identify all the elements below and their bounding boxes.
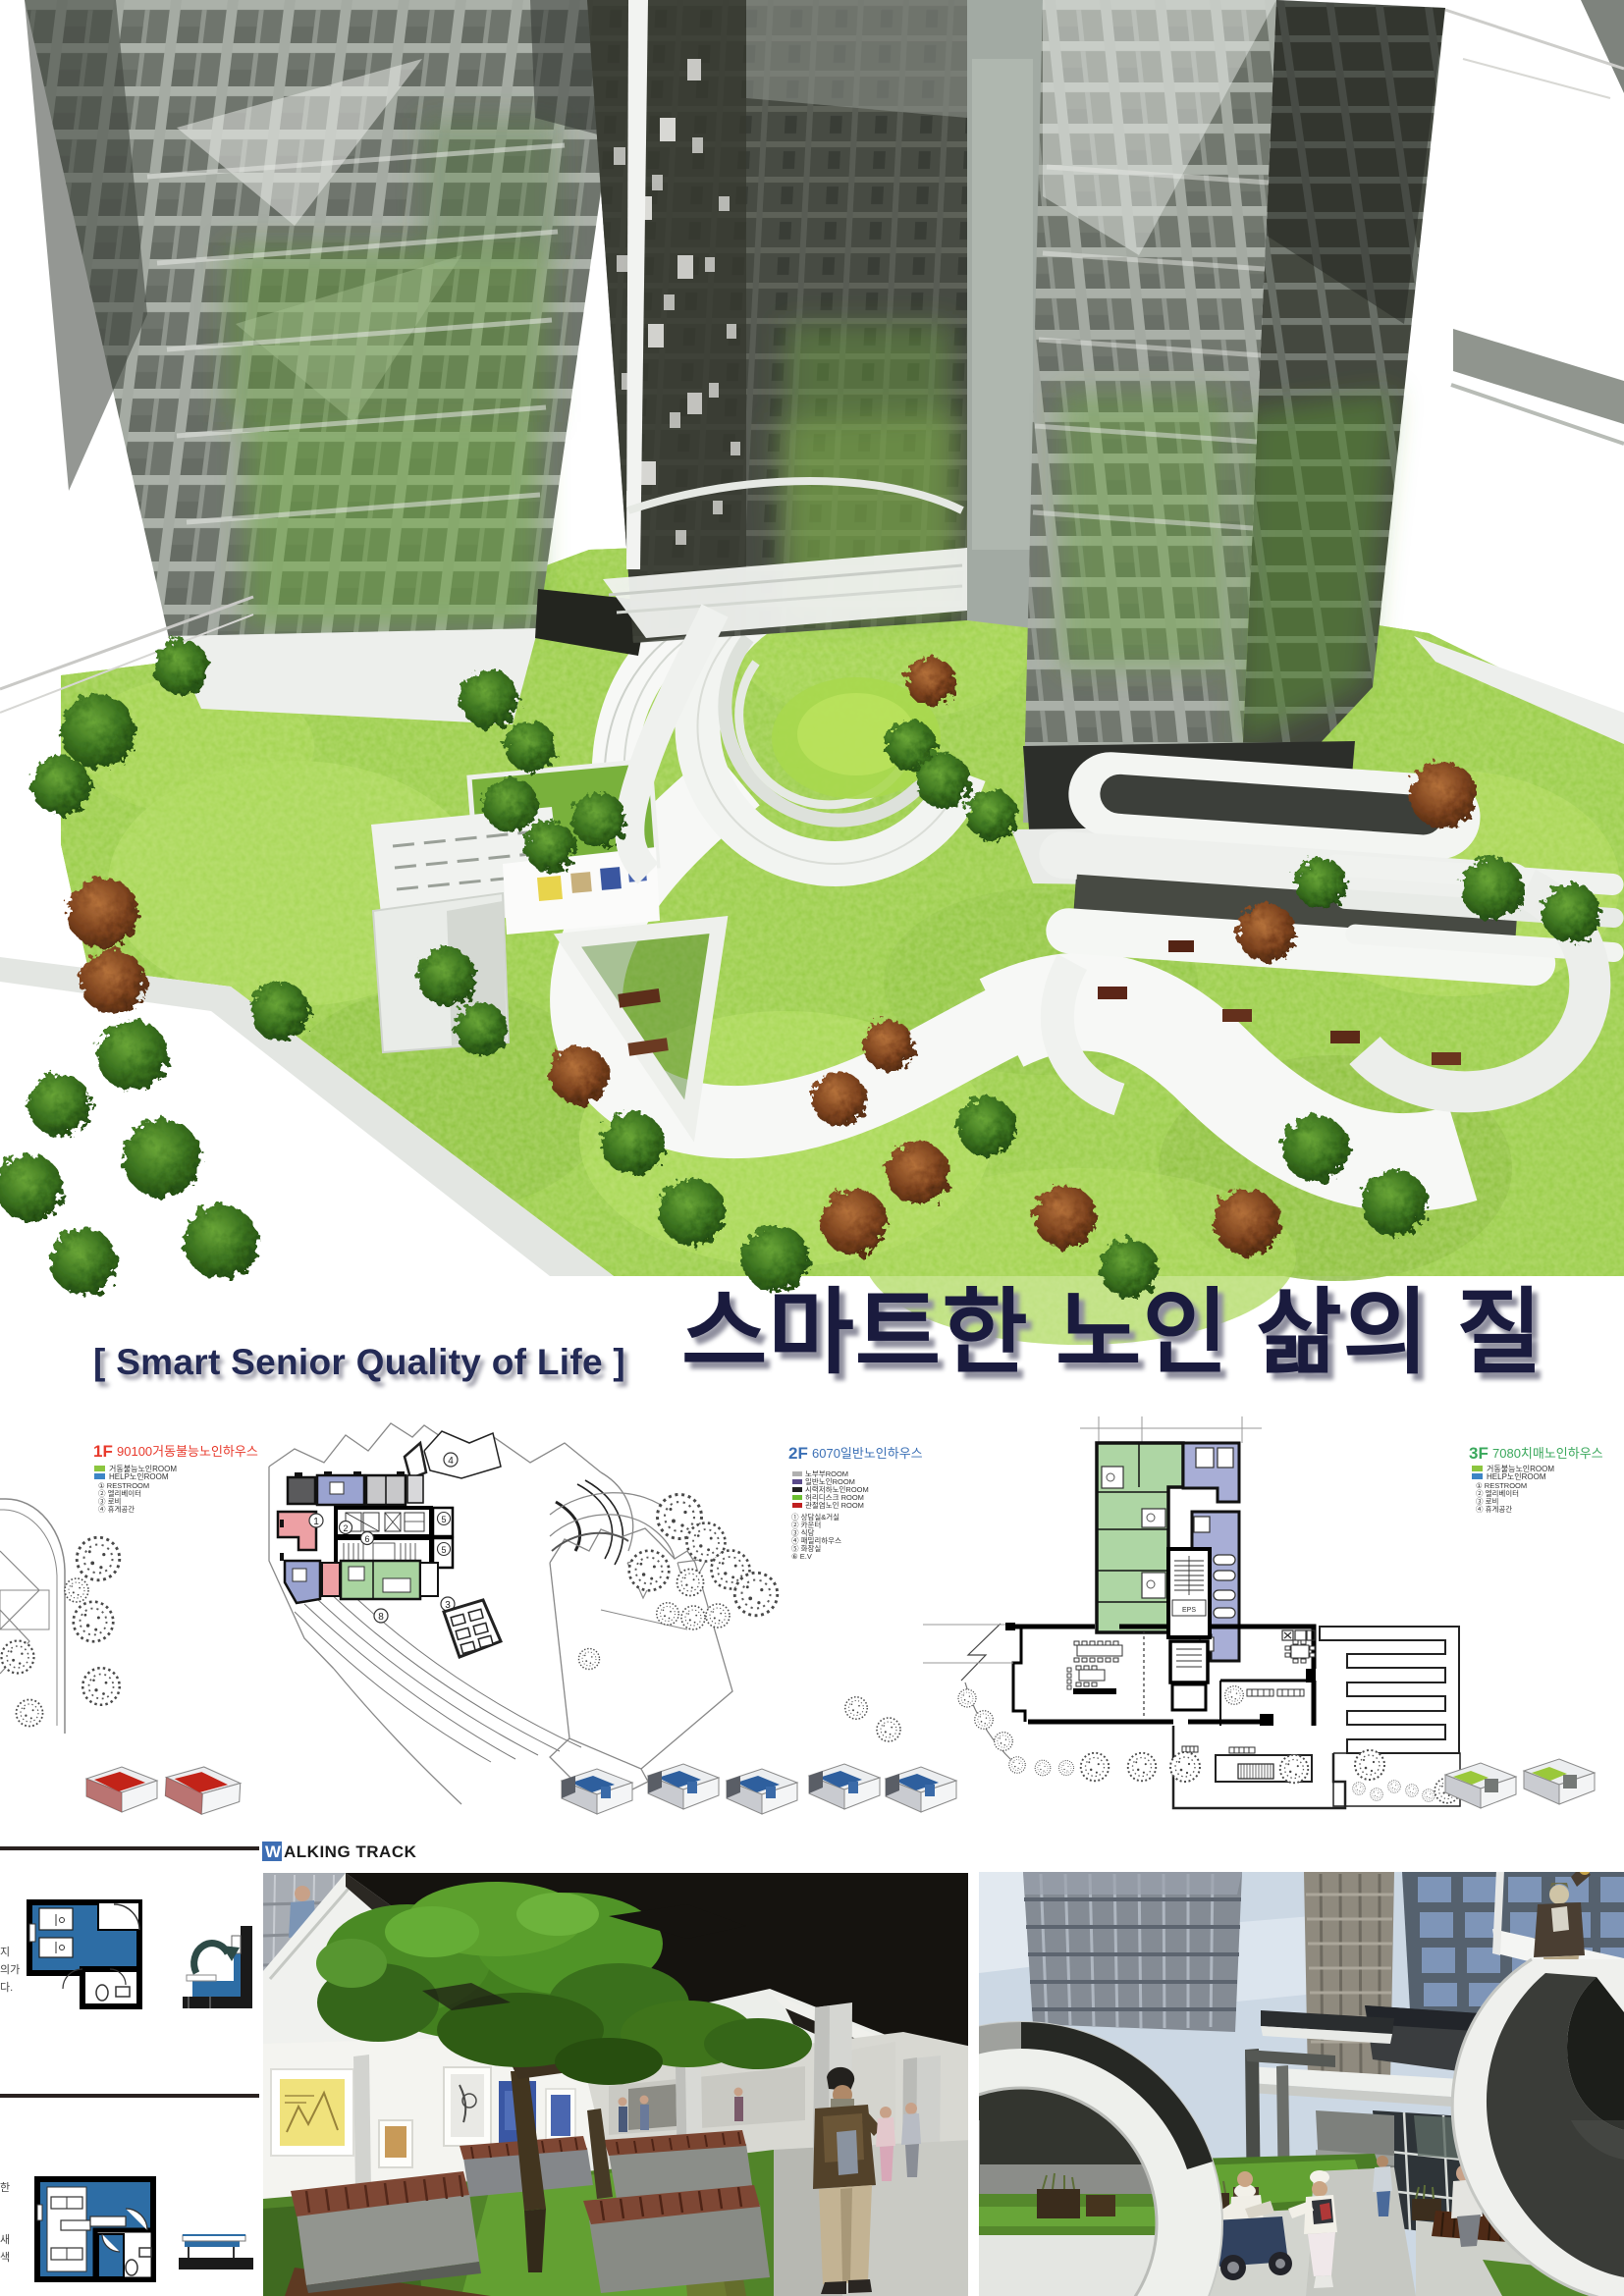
svg-text:④ 휴게공간: ④ 휴게공간 [1476,1504,1512,1514]
svg-text:⑥ E.V: ⑥ E.V [791,1552,812,1561]
svg-text:새: 새 [0,2233,10,2246]
svg-text:EPS: EPS [1182,1607,1196,1614]
svg-text:다.: 다. [0,1981,13,1994]
svg-text:스마트한 노인 삶의 질: 스마트한 노인 삶의 질 [681,1281,1543,1385]
svg-text:[ Smart Senior Quality of Life: [ Smart Senior Quality of Life ] [93,1342,625,1382]
svg-text:4: 4 [448,1456,454,1467]
svg-text:8: 8 [378,1612,384,1623]
svg-text:색: 색 [0,2251,10,2264]
svg-text:2F: 2F [788,1444,808,1463]
svg-text:5: 5 [441,1515,446,1524]
svg-text:HELP노인ROOM: HELP노인ROOM [1487,1471,1546,1481]
svg-text:6: 6 [364,1534,369,1544]
svg-text:의가: 의가 [0,1963,20,1976]
svg-text:한: 한 [0,2181,10,2194]
svg-text:지: 지 [0,1946,10,1958]
svg-text:1F: 1F [93,1442,113,1461]
svg-text:④ 휴게공간: ④ 휴게공간 [98,1504,135,1514]
svg-text:2: 2 [343,1523,348,1533]
svg-text:관절염노인 ROOM: 관절염노인 ROOM [805,1500,864,1510]
svg-text:7080치매노인하우스: 7080치매노인하우스 [1492,1446,1603,1461]
svg-text:1: 1 [313,1517,319,1527]
svg-text:5: 5 [441,1545,446,1555]
svg-text:3F: 3F [1469,1444,1489,1463]
svg-text:W: W [265,1842,282,1861]
svg-text:6070일반노인하우스: 6070일반노인하우스 [812,1446,923,1461]
svg-text:ALKING TRACK: ALKING TRACK [284,1842,417,1861]
svg-text:HELP노인ROOM: HELP노인ROOM [109,1471,169,1481]
svg-text:90100거동불능노인하우스: 90100거동불능노인하우스 [117,1444,258,1459]
